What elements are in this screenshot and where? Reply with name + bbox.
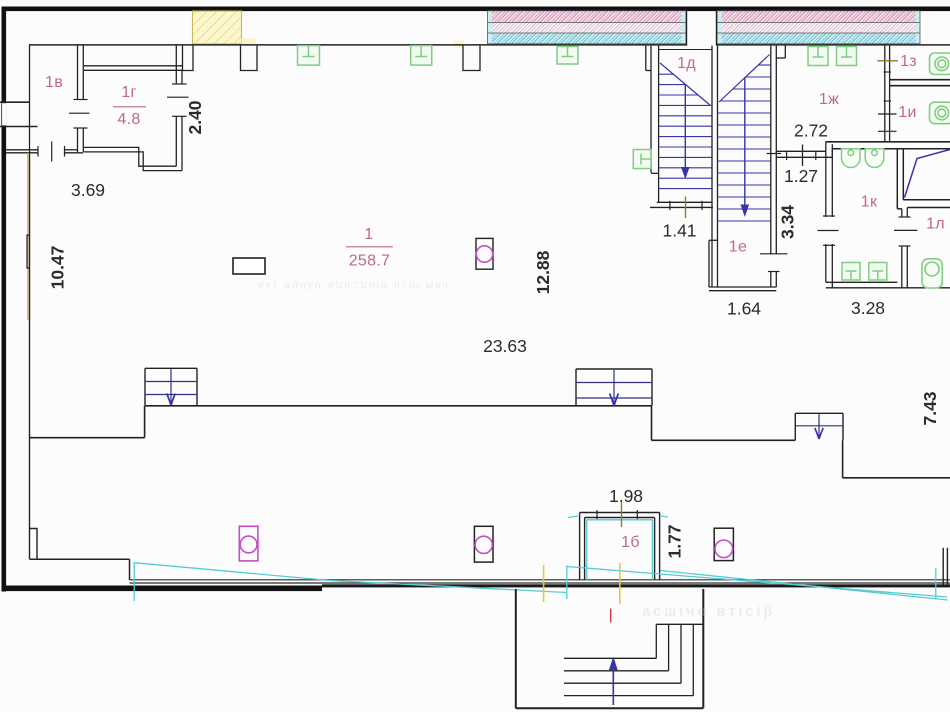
svg-text:1ж: 1ж bbox=[819, 91, 839, 108]
svg-text:3.34: 3.34 bbox=[778, 205, 798, 239]
svg-text:12.88: 12.88 bbox=[533, 250, 553, 294]
svg-text:1: 1 bbox=[364, 226, 373, 243]
svg-text:23.63: 23.63 bbox=[483, 336, 527, 356]
svg-text:7.43: 7.43 bbox=[920, 391, 940, 425]
svg-text:3.28: 3.28 bbox=[851, 298, 885, 318]
svg-text:1.98: 1.98 bbox=[609, 486, 643, 506]
svg-text:1.41: 1.41 bbox=[662, 221, 696, 241]
svg-text:258.7: 258.7 bbox=[349, 253, 391, 270]
svg-text:1г: 1г bbox=[121, 84, 136, 101]
svg-text:1б: 1б bbox=[621, 534, 640, 551]
svg-text:1.27: 1.27 bbox=[784, 166, 818, 186]
svg-text:2.40: 2.40 bbox=[185, 100, 205, 134]
svg-text:4.8: 4.8 bbox=[117, 111, 140, 128]
svg-text:1.77: 1.77 bbox=[665, 524, 685, 558]
svg-text:1з: 1з bbox=[900, 53, 917, 70]
svg-text:1л: 1л bbox=[926, 216, 945, 233]
svg-text:1и: 1и bbox=[898, 104, 916, 121]
svg-text:2.72: 2.72 bbox=[794, 121, 828, 141]
svg-text:1.64: 1.64 bbox=[727, 299, 761, 319]
svg-text:10.47: 10.47 bbox=[48, 246, 68, 290]
svg-text:3.69: 3.69 bbox=[71, 180, 105, 200]
svg-text:1к: 1к bbox=[861, 194, 878, 211]
svg-text:1в: 1в bbox=[45, 74, 63, 91]
svg-text:икт апнул иบнามпια нтαι ыв: икт апнул иบнามпια нтαι ывч bbox=[258, 279, 450, 291]
svg-text:асшιчɑ втιсіβ: асшιчɑ втιсіβ bbox=[642, 604, 775, 620]
svg-text:1е: 1е bbox=[729, 239, 747, 256]
svg-text:1д: 1д bbox=[677, 55, 696, 72]
